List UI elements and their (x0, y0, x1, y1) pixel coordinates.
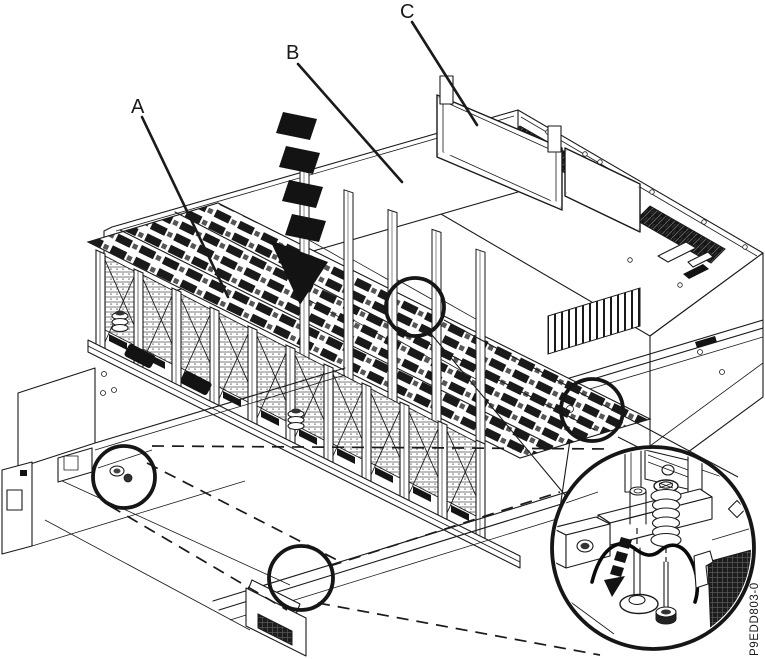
detail-inset (552, 447, 755, 649)
callout-c-label: C (400, 1, 414, 23)
inset-connector-block (708, 550, 755, 634)
captive-screw-right (288, 409, 304, 430)
installation-diagram: A B C (0, 0, 765, 659)
captive-screw-left (112, 311, 128, 332)
rack-flange-left (2, 462, 32, 554)
part-number-label: P9EDD803-0 (749, 582, 761, 656)
callout-b-label: B (286, 42, 299, 64)
detail-circle-c (93, 446, 155, 508)
callout-a-label: A (131, 96, 145, 118)
